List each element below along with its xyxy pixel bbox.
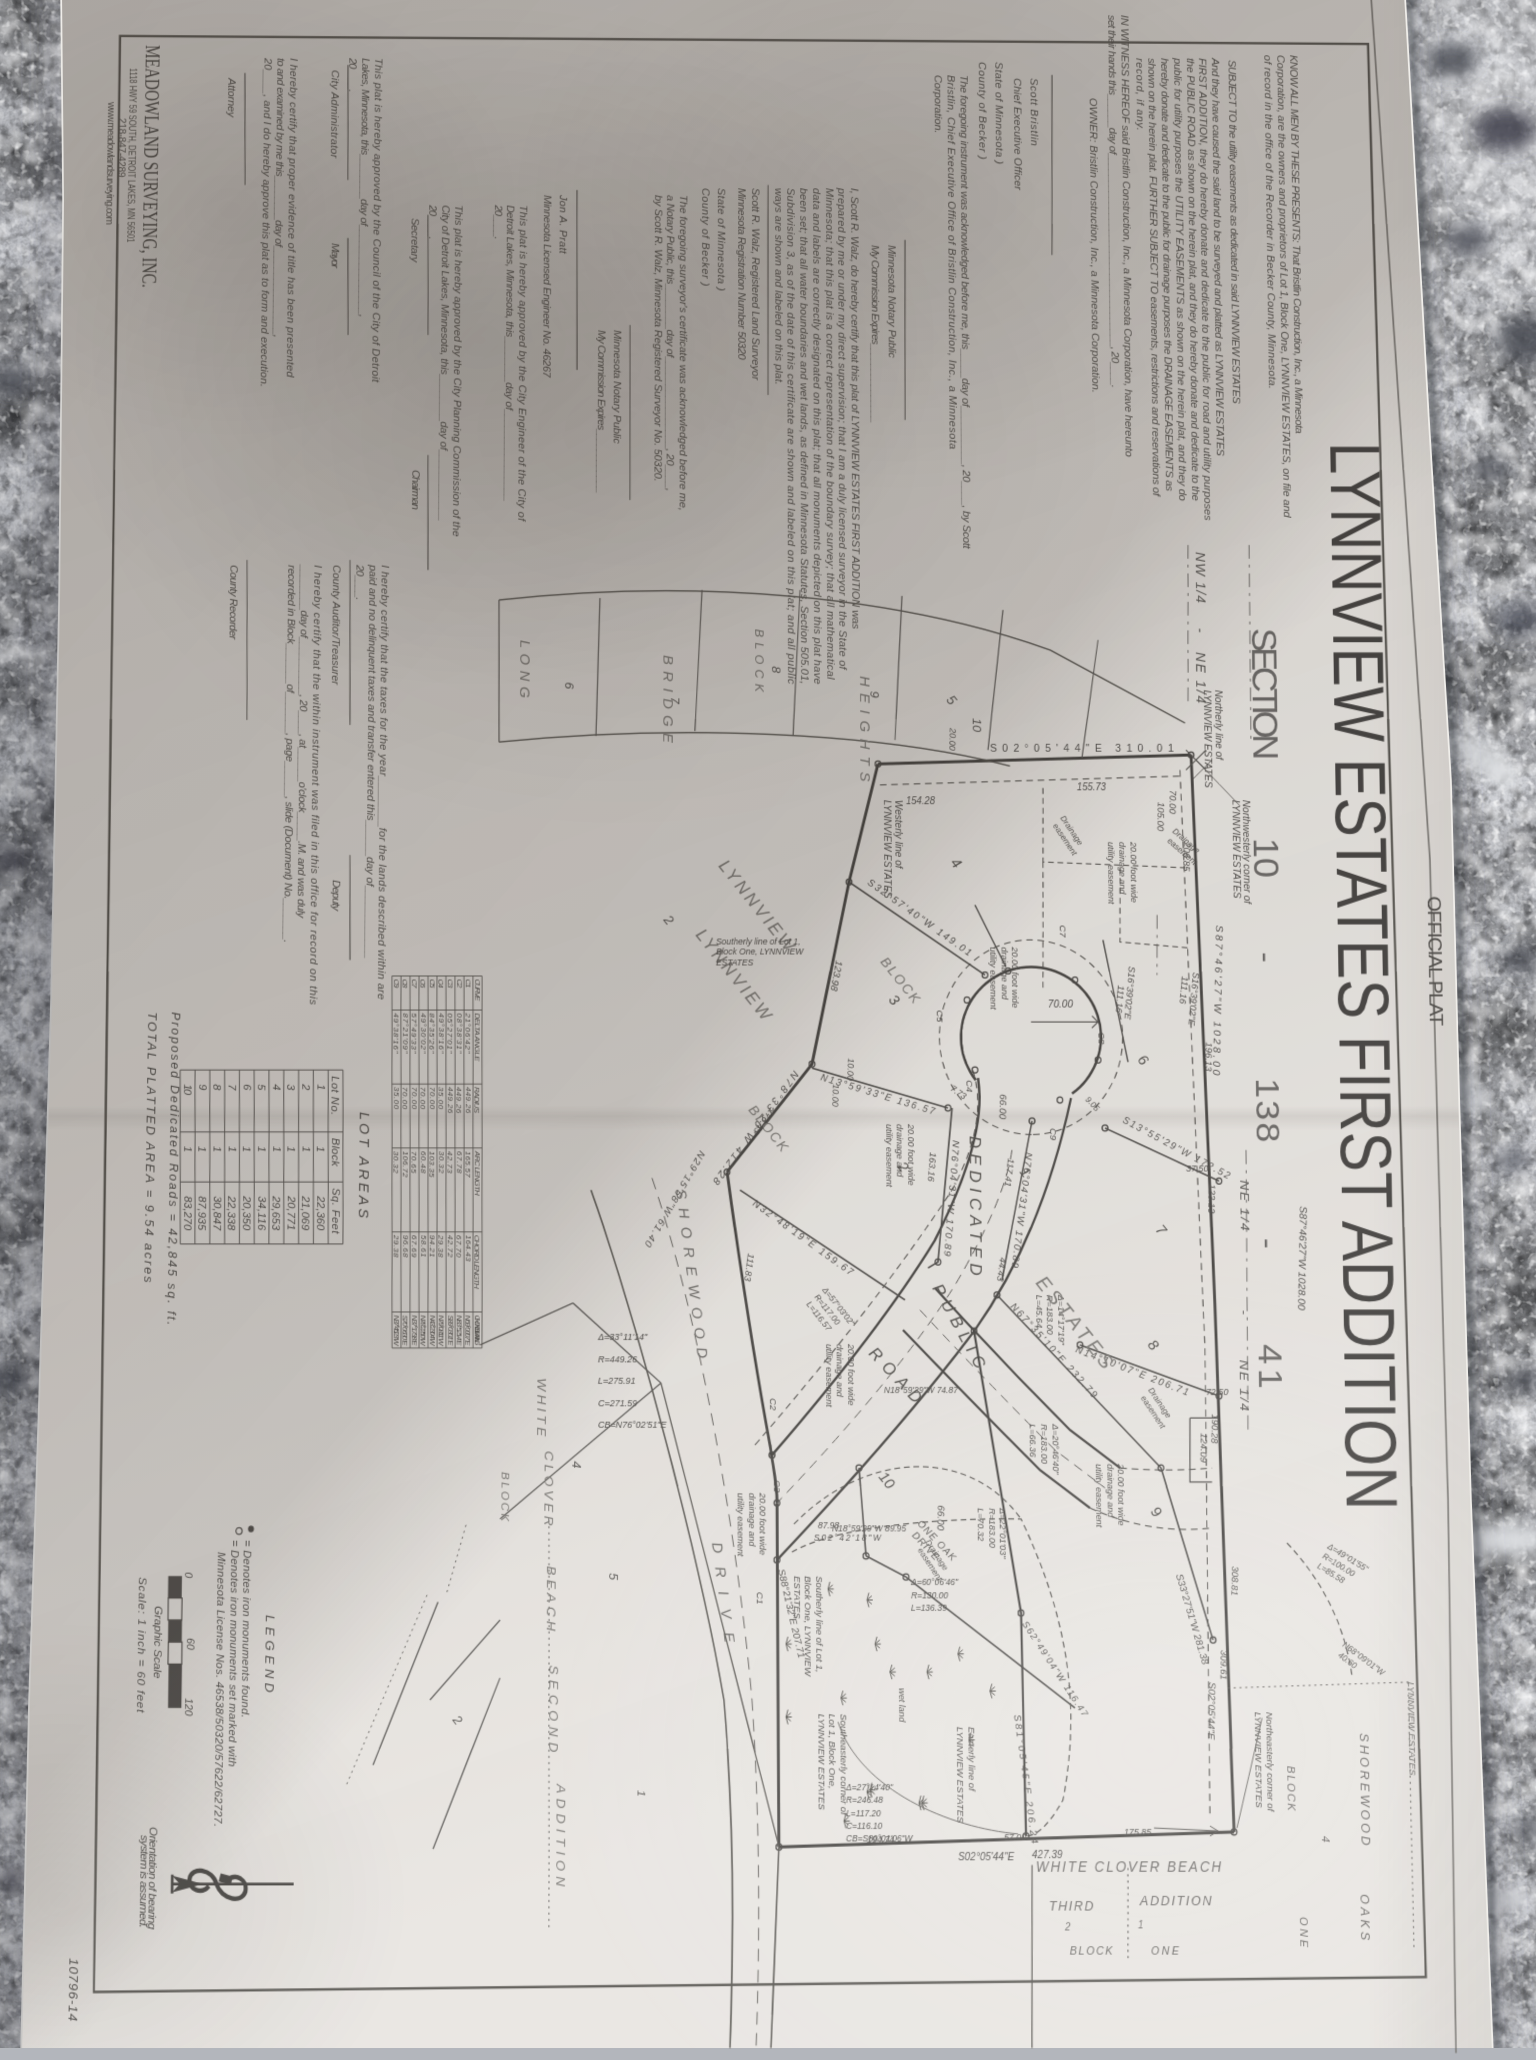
svg-text:Northerly line of: Northerly line of xyxy=(1212,690,1224,761)
svg-text:Deputy: Deputy xyxy=(330,880,341,912)
svg-text:2: 2 xyxy=(449,1711,465,1728)
svg-text:C4: C4 xyxy=(437,979,446,988)
svg-text:1: 1 xyxy=(299,1146,310,1152)
svg-text:LYNNVIEW ESTATES: LYNNVIEW ESTATES xyxy=(1406,1682,1418,1776)
svg-text:175.85: 175.85 xyxy=(1124,1826,1152,1837)
svg-text:L=45.64: L=45.64 xyxy=(1034,1295,1044,1328)
svg-text:4: 4 xyxy=(948,854,965,871)
svg-text:-: - xyxy=(1251,1238,1285,1249)
svg-text:R=449.26: R=449.26 xyxy=(598,1353,637,1364)
svg-text:utility easement: utility easement xyxy=(884,1124,894,1188)
svg-text:70.00: 70.00 xyxy=(428,1087,437,1110)
svg-text:I hereby certify that the taxe: I hereby certify that the taxes for the … xyxy=(375,565,390,1000)
svg-text:4: 4 xyxy=(270,1084,281,1090)
svg-text:drainage and: drainage and xyxy=(835,1344,845,1397)
svg-text:190.28: 190.28 xyxy=(1209,1414,1220,1444)
svg-text:Scott R. Walz, Registered Land: Scott R. Walz, Registered Land Surveyor xyxy=(749,188,760,381)
svg-text:N69°00'07"E: N69°00'07"E xyxy=(464,1315,473,1347)
svg-text:111.16: 111.16 xyxy=(1114,985,1127,1014)
svg-text:8: 8 xyxy=(1145,1336,1163,1354)
svg-text:1: 1 xyxy=(225,1146,236,1152)
svg-text:ONE: ONE xyxy=(1151,1946,1180,1958)
svg-text:This plat is hereby approved b: This plat is hereby approved by the City… xyxy=(450,205,463,537)
svg-text:LYNNVIEW ESTATES: LYNNVIEW ESTATES xyxy=(955,1727,966,1823)
svg-text:L=275.91: L=275.91 xyxy=(598,1375,636,1386)
svg-text:utility easement: utility easement xyxy=(1094,1464,1105,1528)
svg-text:20____.: 20____. xyxy=(353,564,364,600)
svg-text:S02°05'44"E: S02°05'44"E xyxy=(1206,1682,1217,1741)
svg-text:30.32: 30.32 xyxy=(392,1151,401,1174)
svg-text:30,847: 30,847 xyxy=(210,1196,222,1232)
svg-text:CLOVER: CLOVER xyxy=(542,1451,558,1529)
svg-text:4: 4 xyxy=(569,1461,582,1469)
svg-text:10.00: 10.00 xyxy=(845,1058,856,1081)
svg-text:This plat is hereby approved b: This plat is hereby approved by the Coun… xyxy=(369,58,384,383)
svg-text:218-847-4289: 218-847-4289 xyxy=(115,118,127,177)
svg-text:41: 41 xyxy=(1250,1344,1288,1389)
svg-text:103.35: 103.35 xyxy=(428,1151,437,1178)
svg-text:9: 9 xyxy=(1148,1503,1166,1521)
svg-text:60.48: 60.48 xyxy=(419,1151,428,1174)
svg-text:www.meadowlandsurveying.com: www.meadowlandsurveying.com xyxy=(103,101,116,225)
svg-text:record, if any.: record, if any. xyxy=(1133,58,1146,131)
svg-text:1118 HWY 59 SOUTH, DETROIT LAK: 1118 HWY 59 SOUTH, DETROIT LAKES, MN 565… xyxy=(124,68,138,243)
svg-text:utility easement: utility easement xyxy=(1106,842,1117,905)
svg-text:S87°46'27"W 1028.00: S87°46'27"W 1028.00 xyxy=(1295,1206,1308,1311)
svg-text:City of Detroit Lakes, Minneso: City of Detroit Lakes, Minnesota, this__… xyxy=(437,205,450,521)
svg-text:Block: Block xyxy=(329,1138,340,1167)
svg-text:22,360: 22,360 xyxy=(314,1195,326,1231)
svg-text:449.26: 449.26 xyxy=(446,1087,455,1114)
svg-text:29.38: 29.38 xyxy=(437,1234,446,1258)
svg-text:C2: C2 xyxy=(768,1398,778,1410)
svg-text:S02°05'44"E 310.01: S02°05'44"E 310.01 xyxy=(990,744,1174,756)
svg-text:4: 4 xyxy=(1319,1836,1330,1843)
svg-text:N78°22'50"W: N78°22'50"W xyxy=(418,1315,427,1347)
svg-text:County Auditor/Treasurer: County Auditor/Treasurer xyxy=(329,565,341,685)
svg-text:94.21: 94.21 xyxy=(428,1235,437,1257)
svg-text:utility easement: utility easement xyxy=(736,1493,746,1557)
svg-text:Jon A. Pratt: Jon A. Pratt xyxy=(557,194,568,255)
svg-text:Easterly line of: Easterly line of xyxy=(966,1727,977,1793)
svg-text:SECTION: SECTION xyxy=(1244,628,1284,766)
svg-text:OWNER: Bristlin Construction,: OWNER: Bristlin Construction, Inc., a Mi… xyxy=(1087,98,1102,393)
svg-text:Lakes, Minnesota, this________: Lakes, Minnesota, this________day of____… xyxy=(357,58,371,317)
svg-text:309.61: 309.61 xyxy=(1218,1650,1229,1680)
svg-text:data and labels are correctly: data and labels are correctly designated… xyxy=(810,188,822,684)
svg-text:S70°06'30"E: S70°06'30"E xyxy=(400,1315,409,1347)
svg-text:42.73: 42.73 xyxy=(446,1151,455,1174)
svg-text:5: 5 xyxy=(944,692,961,709)
svg-text:I hereby certify that the with: I hereby certify that the within instrum… xyxy=(306,565,322,1005)
svg-text:Chief Executive Officer: Chief Executive Officer xyxy=(1011,78,1024,191)
svg-text:42.72: 42.72 xyxy=(446,1235,455,1258)
svg-text:ROAD: ROAD xyxy=(865,1344,926,1409)
svg-text:C3: C3 xyxy=(446,979,455,989)
svg-text:S62°49'04"W 116.47: S62°49'04"W 116.47 xyxy=(1020,1619,1090,1720)
svg-text:City Administrator: City Administrator xyxy=(328,70,341,159)
svg-text:L=117.20: L=117.20 xyxy=(846,1808,881,1818)
svg-text:1: 1 xyxy=(211,1146,222,1152)
svg-text:This plat is hereby approved b: This plat is hereby approved by the City… xyxy=(515,205,528,522)
svg-text:County of Becker ): County of Becker ) xyxy=(976,62,988,160)
svg-text:67.78: 67.78 xyxy=(455,1151,464,1174)
svg-text:72.50: 72.50 xyxy=(1206,1386,1229,1397)
svg-text:-: - xyxy=(1237,1310,1252,1315)
svg-text:Minnesota Notary Public: Minnesota Notary Public xyxy=(611,330,622,444)
svg-text:C6: C6 xyxy=(419,979,428,989)
svg-text:utility easement: utility easement xyxy=(824,1344,834,1408)
svg-text:70.00: 70.00 xyxy=(410,1087,419,1110)
svg-text:6: 6 xyxy=(240,1084,251,1090)
svg-text:WHITE: WHITE xyxy=(534,1378,550,1439)
svg-text:WHITE CLOVER BEACH: WHITE CLOVER BEACH xyxy=(1036,1859,1224,1876)
svg-text:drainage and: drainage and xyxy=(895,1124,905,1177)
svg-text:LYNNVIEW ESTATES: LYNNVIEW ESTATES xyxy=(816,1714,827,1810)
svg-text:N37°17'38"E: N37°17'38"E xyxy=(410,1315,419,1347)
svg-text:OFFICIAL PLAT: OFFICIAL PLAT xyxy=(1423,896,1447,1028)
svg-text:124.09: 124.09 xyxy=(1198,1433,1209,1463)
svg-text:70.00: 70.00 xyxy=(1048,999,1074,1011)
svg-text:BLOCK: BLOCK xyxy=(499,1472,512,1523)
svg-text:111.83: 111.83 xyxy=(742,1253,756,1282)
svg-text:83,270: 83,270 xyxy=(181,1196,193,1231)
svg-text:SHOREWOOD: SHOREWOOD xyxy=(673,1188,712,1366)
svg-text:87.98: 87.98 xyxy=(818,1519,840,1530)
svg-text:8: 8 xyxy=(769,666,783,673)
svg-text:C1: C1 xyxy=(755,1592,765,1605)
svg-text:7: 7 xyxy=(225,1084,236,1092)
svg-text:C4: C4 xyxy=(964,1080,974,1092)
svg-text:44.43: 44.43 xyxy=(995,1257,1008,1282)
svg-text:PUBLIC: PUBLIC xyxy=(929,1281,990,1374)
svg-text:LYNNVIEW ESTATES: LYNNVIEW ESTATES xyxy=(1201,690,1213,789)
svg-text:7: 7 xyxy=(1153,1221,1171,1240)
svg-text:DELTA ANGLE: DELTA ANGLE xyxy=(472,1013,481,1062)
svg-text:ADDITION: ADDITION xyxy=(1139,1893,1214,1909)
svg-text:LEGEND: LEGEND xyxy=(262,1615,277,1696)
svg-text:Lot 1, Block One,: Lot 1, Block One, xyxy=(827,1714,837,1789)
svg-text:10: 10 xyxy=(970,718,984,732)
svg-text:449.26: 449.26 xyxy=(464,1087,473,1114)
svg-text:20.00 foot wide: 20.00 foot wide xyxy=(846,1343,856,1406)
svg-text:84°35'26": 84°35'26" xyxy=(428,1013,437,1054)
svg-text:35.00: 35.00 xyxy=(437,1087,446,1110)
svg-text:ARC LENGTH: ARC LENGTH xyxy=(473,1150,482,1196)
svg-text:1: 1 xyxy=(240,1146,251,1152)
svg-text:1: 1 xyxy=(314,1084,325,1090)
svg-text:County Recorder: County Recorder xyxy=(226,565,238,640)
svg-text:Corporation.: Corporation. xyxy=(932,75,944,133)
svg-text:L=136.39: L=136.39 xyxy=(911,1602,947,1613)
svg-text:120: 120 xyxy=(182,1698,194,1717)
svg-text:LYNNVIEW ESTATES: LYNNVIEW ESTATES xyxy=(881,800,892,899)
svg-text:BLOCK: BLOCK xyxy=(1284,1766,1296,1813)
svg-text:Minnesota Licensed Engineer No: Minnesota Licensed Engineer No. 46267 xyxy=(540,195,552,379)
svg-text:1: 1 xyxy=(270,1146,281,1152)
svg-text:by Scott R. Walz, Minnesota Re: by Scott R. Walz, Minnesota Registered S… xyxy=(651,195,662,482)
svg-text:wet land: wet land xyxy=(897,1688,906,1722)
svg-text:117.41: 117.41 xyxy=(1002,1158,1016,1188)
svg-text:35.00: 35.00 xyxy=(392,1087,401,1110)
svg-text:TOTAL PLATTED AREA = 9.54 acre: TOTAL PLATTED AREA = 9.54 acres xyxy=(141,1012,159,1283)
svg-text:5: 5 xyxy=(606,1573,619,1581)
svg-text:C=116.10: C=116.10 xyxy=(846,1821,883,1831)
svg-text:SECOND: SECOND xyxy=(546,1665,561,1754)
svg-text:154.28: 154.28 xyxy=(906,796,936,808)
svg-text:I hereby certify that proper e: I hereby certify that proper evidence of… xyxy=(283,58,299,379)
svg-text:= Denotes iron monuments found: = Denotes iron monuments found. xyxy=(239,1540,252,1718)
svg-text:Bristlin, Chief Executive Offi: Bristlin, Chief Executive Office of Bris… xyxy=(944,75,958,449)
svg-text:21,069: 21,069 xyxy=(299,1195,311,1231)
svg-text:LOT AREAS: LOT AREAS xyxy=(356,1112,372,1218)
svg-text:CHORD BEARING: CHORD BEARING xyxy=(473,1315,482,1346)
svg-text:BLOCK: BLOCK xyxy=(1070,1946,1114,1958)
svg-text:2: 2 xyxy=(1064,1921,1071,1932)
svg-text:THIRD: THIRD xyxy=(1049,1898,1095,1914)
svg-text:S33°27'51"W 281.38: S33°27'51"W 281.38 xyxy=(1174,1572,1211,1666)
svg-text:70.65: 70.65 xyxy=(410,1151,419,1174)
svg-text:9: 9 xyxy=(867,691,881,698)
svg-text:Δ=33°11'14": Δ=33°11'14" xyxy=(597,1331,648,1342)
svg-text:58.61: 58.61 xyxy=(419,1235,428,1257)
svg-text:22,338: 22,338 xyxy=(225,1195,237,1231)
svg-text:BLOCK: BLOCK xyxy=(878,954,925,1008)
svg-text:N18°59'29"W 74.87: N18°59'29"W 74.87 xyxy=(884,1384,958,1395)
svg-text:ways are shown and labeled on: ways are shown and labeled on this plat. xyxy=(772,188,783,385)
svg-text:CB=S80°01'06"W: CB=S80°01'06"W xyxy=(846,1834,914,1844)
svg-text:138: 138 xyxy=(1248,1078,1286,1142)
svg-text:1: 1 xyxy=(196,1146,207,1152)
svg-text:RADIUS: RADIUS xyxy=(473,1087,482,1113)
svg-text:449.26: 449.26 xyxy=(455,1087,464,1114)
svg-text:C9: C9 xyxy=(392,979,401,989)
svg-text:Minnesota Notary Public: Minnesota Notary Public xyxy=(885,245,896,359)
svg-text:My Commission Expires_________: My Commission Expires_______________ xyxy=(869,245,881,423)
svg-text:1: 1 xyxy=(1138,1919,1143,1930)
svg-text:5: 5 xyxy=(255,1084,266,1090)
svg-text:NE 1/4: NE 1/4 xyxy=(1237,1180,1253,1231)
svg-text:utility easement: utility easement xyxy=(988,947,999,1010)
svg-text:163.16: 163.16 xyxy=(926,1152,938,1182)
svg-text:SHOREWOOD: SHOREWOOD xyxy=(1357,1733,1372,1850)
svg-text:BEACH: BEACH xyxy=(544,1566,560,1634)
svg-text:system is assumed.: system is assumed. xyxy=(137,1835,151,1928)
svg-text:Δ=20°46'40": Δ=20°46'40" xyxy=(1050,1423,1061,1476)
svg-text:87,935: 87,935 xyxy=(195,1196,207,1231)
svg-text:-: - xyxy=(1249,952,1282,963)
svg-text:08°38'31": 08°38'31" xyxy=(455,1013,464,1054)
svg-text:Minnesota Registration Number: Minnesota Registration Number 50320 xyxy=(735,188,746,360)
svg-text:C7: C7 xyxy=(410,979,419,989)
svg-text:20.00 foot wide: 20.00 foot wide xyxy=(1116,1463,1127,1526)
svg-text:106.72: 106.72 xyxy=(401,1151,410,1178)
svg-text:OAKS: OAKS xyxy=(1357,1894,1370,1944)
svg-text:The foregoing instrument was a: The foregoing instrument was acknowledge… xyxy=(957,75,972,550)
svg-text:Block One, LYNNVIEW: Block One, LYNNVIEW xyxy=(716,946,804,957)
svg-text:1: 1 xyxy=(285,1146,296,1152)
svg-text:165.57: 165.57 xyxy=(464,1151,473,1178)
svg-text:C9: C9 xyxy=(1048,1128,1058,1140)
svg-text:N37°45'23"W: N37°45'23"W xyxy=(392,1315,401,1347)
svg-text:drainage and: drainage and xyxy=(1117,842,1128,895)
svg-text:NW 1/4: NW 1/4 xyxy=(1193,552,1209,603)
svg-text:Southerly line of Lot 1,: Southerly line of Lot 1, xyxy=(716,935,800,946)
svg-text:LYNNVIEW ESTATES FIRST ADDI: LYNNVIEW ESTATES FIRST ADDITION xyxy=(1315,442,1412,1510)
svg-text:CURVE: CURVE xyxy=(473,979,482,1002)
svg-text:N43°23'04"W: N43°23'04"W xyxy=(428,1315,437,1347)
svg-text:N79°08'11"W: N79°08'11"W xyxy=(436,1315,445,1347)
svg-text:Proposed Dedicated Roads = 42,: Proposed Dedicated Roads = 42,845 sq. ft… xyxy=(165,1012,182,1325)
svg-text:drainage and: drainage and xyxy=(1105,1464,1116,1518)
svg-text:Detroit Lakes, Minnesota, this: Detroit Lakes, Minnesota, this________da… xyxy=(503,205,516,502)
svg-text:NE 1/4: NE 1/4 xyxy=(1237,1360,1253,1411)
svg-text:SUBJECT TO the utility easemen: SUBJECT TO the utility easements as dedi… xyxy=(1225,60,1241,404)
svg-text:Northwesterly corner of: Northwesterly corner of xyxy=(1240,800,1252,905)
svg-text:6: 6 xyxy=(1135,1051,1153,1069)
svg-text:Sq. Feet: Sq. Feet xyxy=(329,1188,341,1235)
svg-text:Scale: 1 inch = 60 feet: Scale: 1 inch = 60 feet xyxy=(134,1577,148,1714)
svg-text:66.00: 66.00 xyxy=(935,1505,946,1532)
svg-text:LONG: LONG xyxy=(517,640,533,701)
svg-text:9: 9 xyxy=(196,1084,207,1090)
svg-text:6: 6 xyxy=(562,682,576,689)
svg-text:20.00 foot wide: 20.00 foot wide xyxy=(1010,946,1021,1008)
svg-text:S02°05'44"E: S02°05'44"E xyxy=(958,1851,1015,1863)
svg-text:L=70.32: L=70.32 xyxy=(976,1508,986,1542)
svg-text:Minnesota License Nos. 46538/5: Minnesota License Nos. 46538/50320/57622… xyxy=(211,1552,226,1827)
svg-text:3: 3 xyxy=(886,991,904,1009)
svg-text:20.00 foot wide: 20.00 foot wide xyxy=(906,1123,916,1186)
svg-text:70.00: 70.00 xyxy=(419,1087,428,1110)
svg-text:-: - xyxy=(1193,628,1208,633)
svg-text:10796-14: 10796-14 xyxy=(65,1958,81,2021)
svg-text:R=130.00: R=130.00 xyxy=(911,1589,949,1600)
svg-text:20.00 foot wide: 20.00 foot wide xyxy=(1128,841,1139,903)
svg-text:Mayor: Mayor xyxy=(329,243,340,269)
svg-text:30.32: 30.32 xyxy=(437,1151,446,1174)
svg-text:2: 2 xyxy=(660,911,677,929)
svg-text:105.00: 105.00 xyxy=(1155,802,1166,831)
svg-text:C8: C8 xyxy=(401,979,410,989)
svg-text:308.81: 308.81 xyxy=(1229,1566,1240,1596)
svg-text:10.00: 10.00 xyxy=(830,1084,841,1107)
svg-text:Minnesota; that this plat is a: Minnesota; that this plat is a correct r… xyxy=(823,188,835,680)
svg-text:S02°42'18"W: S02°42'18"W xyxy=(814,1532,882,1543)
svg-text:CB=N76°02'51"E: CB=N76°02'51"E xyxy=(598,1419,667,1430)
svg-text:Attorney: Attorney xyxy=(225,77,237,118)
svg-text:N76°04'31"W 170.89: N76°04'31"W 170.89 xyxy=(942,1140,961,1257)
svg-text:N32°48'19"E 159.67: N32°48'19"E 159.67 xyxy=(751,1198,856,1278)
svg-text:70.00: 70.00 xyxy=(1167,790,1178,814)
svg-text:10: 10 xyxy=(876,1468,899,1493)
svg-text:Scott Bristlin: Scott Bristlin xyxy=(1027,78,1039,146)
svg-text:57°49'33": 57°49'33" xyxy=(409,1013,418,1054)
svg-text:Northeasterly corner of: Northeasterly corner of xyxy=(1264,1712,1276,1813)
svg-text:111.16: 111.16 xyxy=(1178,976,1190,1005)
svg-text:R=246.48: R=246.48 xyxy=(846,1795,883,1805)
svg-text:10: 10 xyxy=(181,1084,192,1095)
svg-text:LYNNVIEW ESTATES: LYNNVIEW ESTATES xyxy=(1229,800,1241,899)
svg-text:Secretary: Secretary xyxy=(409,218,420,263)
svg-text:20.00: 20.00 xyxy=(947,727,958,751)
svg-text:Δ=27°14'40": Δ=27°14'40" xyxy=(845,1782,894,1792)
svg-text:Westerly line of: Westerly line of xyxy=(892,800,903,870)
svg-text:The foregoing surveyor's certi: The foregoing surveyor's certificate was… xyxy=(677,195,688,511)
svg-text:drainage and: drainage and xyxy=(747,1493,757,1547)
svg-text:1: 1 xyxy=(181,1146,192,1152)
svg-text:DEDICATED: DEDICATED xyxy=(966,1136,984,1278)
svg-text:49°38'16": 49°38'16" xyxy=(391,1013,400,1054)
svg-text:C1: C1 xyxy=(464,979,473,988)
svg-text:ESTATES: ESTATES xyxy=(716,957,754,968)
svg-text:C7: C7 xyxy=(1058,925,1068,938)
svg-text:70.00: 70.00 xyxy=(401,1087,410,1110)
svg-text:Southerly line of Lot 1,: Southerly line of Lot 1, xyxy=(814,1576,824,1673)
svg-text:Subdivision 3, as of the date: Subdivision 3, as of the date of this ce… xyxy=(785,188,797,685)
svg-text:a Notary Public, this________d: a Notary Public, this________day of_____… xyxy=(664,195,675,491)
svg-text:prepared by me or under my dir: prepared by me or under my direct superv… xyxy=(835,187,847,671)
svg-text:67.70: 67.70 xyxy=(455,1235,464,1258)
svg-text:State of Minnesota ): State of Minnesota ) xyxy=(715,188,726,291)
svg-text:= Denotes iron monuments set m: = Denotes iron monuments set marked with xyxy=(225,1540,239,1767)
svg-text:DRIVE: DRIVE xyxy=(709,1541,739,1651)
svg-text:1: 1 xyxy=(314,1146,325,1152)
svg-text:49°38'16": 49°38'16" xyxy=(436,1013,445,1054)
svg-text:LYNNVIEW ESTATES: LYNNVIEW ESTATES xyxy=(1253,1712,1265,1808)
svg-text:ADDITION: ADDITION xyxy=(553,1783,568,1889)
svg-text:My Commission Expires_________: My Commission Expires____________ xyxy=(594,330,605,493)
svg-text:BLOCK: BLOCK xyxy=(752,629,766,694)
svg-text:29.38: 29.38 xyxy=(392,1234,401,1258)
svg-text:155.73: 155.73 xyxy=(1077,782,1107,794)
svg-text:Block One, LYNNVIEW: Block One, LYNNVIEW xyxy=(803,1576,813,1677)
svg-text:34,116: 34,116 xyxy=(255,1196,267,1231)
svg-text:State of Minnesota ): State of Minnesota ) xyxy=(992,62,1005,164)
svg-text:164.43: 164.43 xyxy=(464,1235,473,1262)
svg-text:20,771: 20,771 xyxy=(284,1195,296,1231)
svg-text:IN WITNESS HEREOF said Bristli: IN WITNESS HEREOF said Bristlin Construc… xyxy=(1118,15,1134,457)
svg-text:20,350: 20,350 xyxy=(240,1195,252,1231)
svg-text:L=66.36: L=66.36 xyxy=(1028,1424,1038,1458)
svg-text:I, Scott R. Walz, do hereby ce: I, Scott R. Walz, do hereby certify that… xyxy=(848,188,860,630)
svg-text:2: 2 xyxy=(299,1083,310,1091)
svg-text:C=271.59: C=271.59 xyxy=(598,1397,637,1408)
svg-text:County of Becker ): County of Becker ) xyxy=(699,188,710,286)
svg-text:Chairman: Chairman xyxy=(409,470,420,510)
svg-text:8: 8 xyxy=(210,1084,221,1090)
svg-text:66.00: 66.00 xyxy=(997,1094,1008,1120)
svg-text:C5: C5 xyxy=(935,1010,945,1022)
svg-text:Δ=22°01'03": Δ=22°01'03" xyxy=(998,1507,1009,1560)
svg-text:87°21'09": 87°21'09" xyxy=(400,1013,409,1054)
svg-text:9.05: 9.05 xyxy=(1084,1095,1102,1114)
svg-text:Graphic Scale: Graphic Scale xyxy=(151,1606,164,1678)
svg-text:drainage and: drainage and xyxy=(999,947,1009,1000)
svg-text:123.13: 123.13 xyxy=(1206,1184,1217,1214)
svg-text:67.69: 67.69 xyxy=(410,1235,419,1257)
svg-text:R=183.00: R=183.00 xyxy=(1039,1424,1050,1464)
svg-text:C2: C2 xyxy=(455,979,464,989)
svg-text:1: 1 xyxy=(255,1146,266,1152)
svg-text:20.00 foot wide: 20.00 foot wide xyxy=(758,1492,768,1556)
svg-text:3: 3 xyxy=(284,1084,295,1090)
svg-text:MEADOWLAND SURVEYING, INC.: MEADOWLAND SURVEYING, INC. xyxy=(137,45,164,288)
svg-text:37.50: 37.50 xyxy=(1186,1163,1209,1174)
svg-text:C5: C5 xyxy=(428,979,437,989)
svg-text:29,653: 29,653 xyxy=(269,1195,281,1231)
svg-text:Lot No.: Lot No. xyxy=(329,1076,341,1115)
